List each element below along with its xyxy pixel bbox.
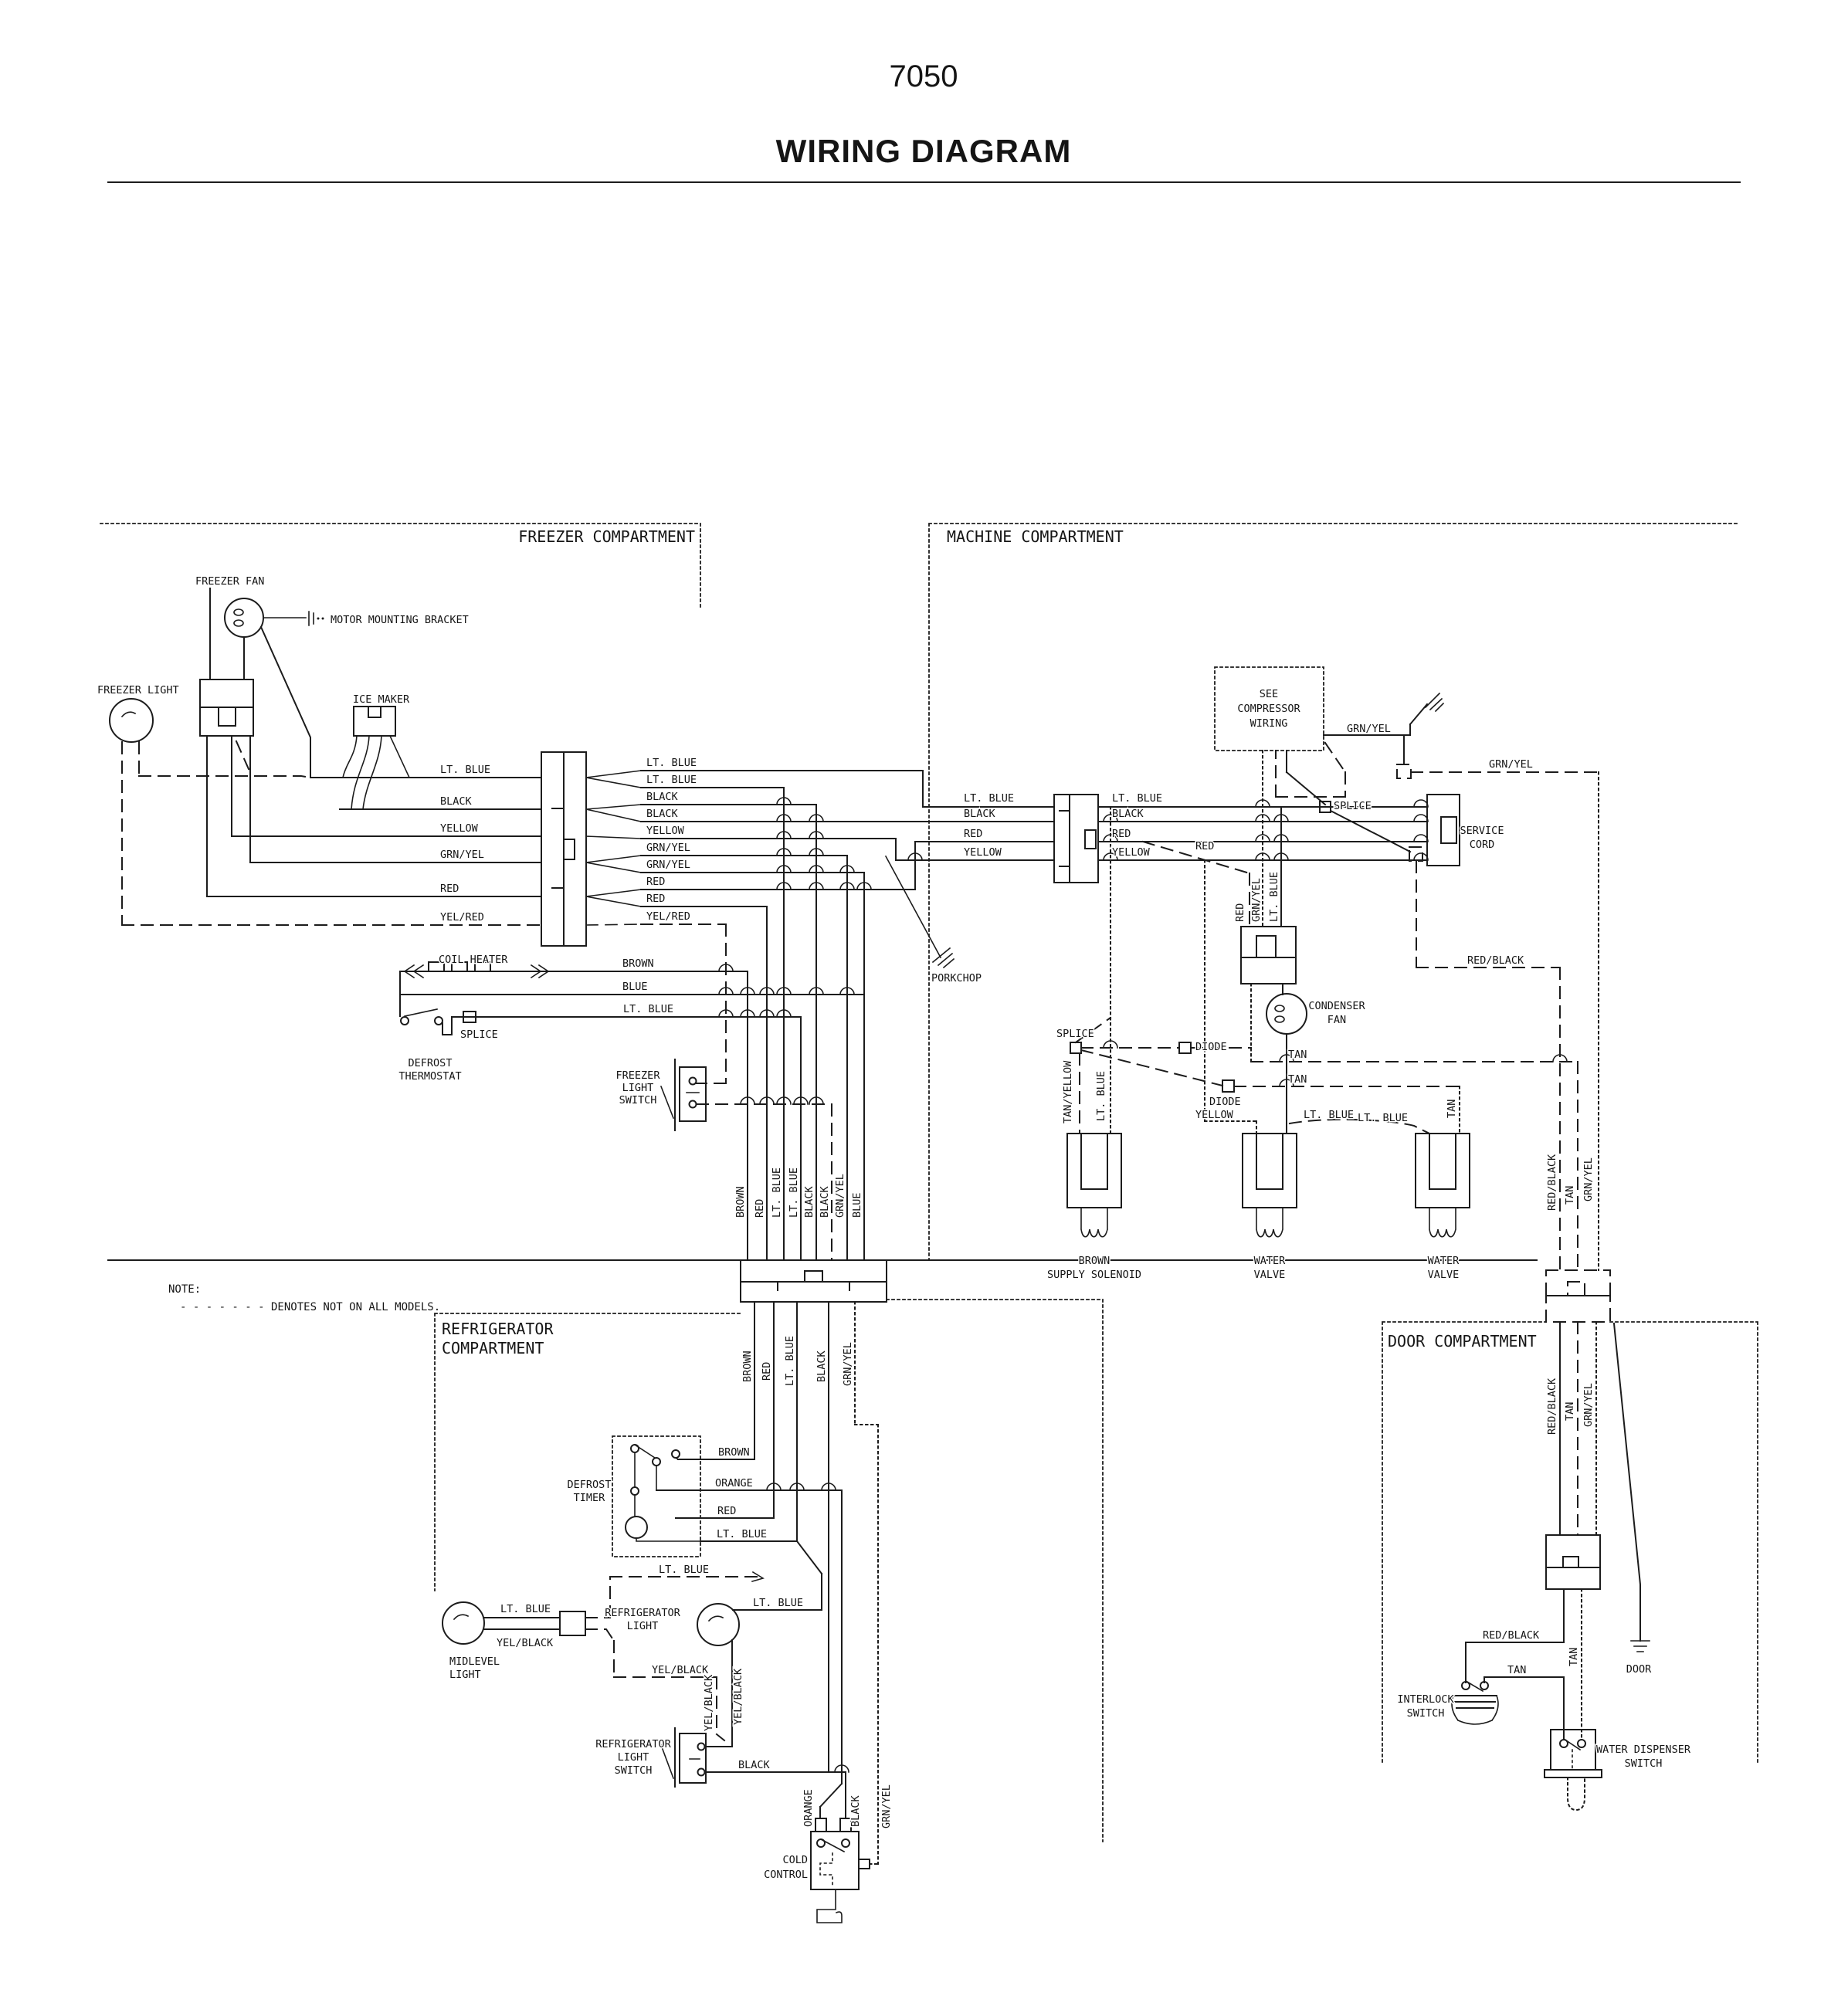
component-label-freezer-fan: FREEZER FAN [195, 575, 264, 588]
freezer-light [110, 699, 310, 925]
wire-label-black-p2: BLACK [646, 808, 679, 820]
component-label-defrost-thermostat: DEFROSTTHERMOSTAT [398, 1057, 461, 1083]
wire-label-grnyel-vr: GRN/YEL [1582, 1157, 1595, 1201]
component-label-door: DOOR [1626, 1663, 1652, 1676]
page-number: 7050 [890, 59, 958, 93]
wire-label-black-v1: BLACK [803, 1185, 815, 1218]
wire-label-grnyel-sc: GRN/YEL [1489, 758, 1533, 771]
door-wires-upper [1560, 1322, 1596, 1535]
wire-label-grnyel-v1: GRN/YEL [834, 1174, 846, 1218]
wire-label-redblack-d: RED/BLACK [1483, 1629, 1540, 1642]
page-title: WIRING DIAGRAM [776, 133, 1072, 169]
wire-label-yellow-wv: YELLOW [1195, 1109, 1234, 1121]
wire-label-splice-fz: SPLICE [460, 1029, 498, 1041]
wire-label-grnyel-v6: GRN/YEL [880, 1784, 893, 1828]
compartment-borders [100, 524, 1758, 1842]
component-label-porkchop: PORKCHOP [931, 972, 982, 984]
note-label: NOTE: [168, 1283, 201, 1296]
wire-label-red-mc2: RED [1112, 828, 1131, 840]
wire-label-yelred-fz: YEL/RED [440, 911, 484, 923]
wire-label-grnyel-vd: GRN/YEL [1582, 1383, 1595, 1427]
wire-label-redblack-vd: RED/BLACK [1546, 1378, 1558, 1435]
wire-label-tan-vd: TAN [1564, 1402, 1576, 1421]
wire-label-brown-ch: BROWN [622, 957, 654, 970]
component-label-water-valve-1: WATERVALVE [1254, 1255, 1287, 1281]
wire-label-red-t: RED [717, 1505, 736, 1517]
wire-label-yelblack-dash: YEL/BLACK [652, 1664, 709, 1676]
component-label-condenser-fan: CONDENSERFAN [1308, 1000, 1365, 1026]
wire-label-tan-2: TAN [1288, 1073, 1307, 1086]
wire-label-tan-v1: TAN [1446, 1100, 1458, 1118]
wire-label-yellow-mc2: YELLOW [1112, 846, 1151, 859]
wiring-diagram-page: 7050 WIRING DIAGRAM NOTE: - - - - - - - … [0, 0, 1848, 2013]
component-label-see-compressor-wiring: SEECOMPRESSORWIRING [1237, 688, 1300, 730]
wire-label-ltblue-v3: LT. BLUE [784, 1336, 796, 1386]
wiring-diagram-canvas: 7050 WIRING DIAGRAM NOTE: - - - - - - - … [0, 0, 1848, 2013]
wire-label-black-mc2: BLACK [1112, 808, 1144, 820]
wire-label-ltblue-mc1: LT. BLUE [964, 792, 1014, 805]
wire-label-ltblue-vm: LT. BLUE [1268, 872, 1280, 922]
component-label-defrost-timer: DEFROSTTIMER [568, 1479, 612, 1504]
interlock-switch [1452, 1681, 1498, 1724]
machine-lower-wires [1070, 807, 1578, 1270]
note-text: - - - - - - - DENOTES NOT ON ALL MODELS. [180, 1301, 440, 1313]
freezer-plug-connector [541, 752, 641, 946]
wire-label-black-v2: BLACK [819, 1185, 831, 1218]
wire-label-ltblue-wv: LT. BLUE [1304, 1109, 1354, 1121]
wire-label-black-mc1: BLACK [964, 808, 996, 820]
machine-connector [1054, 795, 1098, 883]
wire-label-black-v4: BLACK [849, 1794, 862, 1827]
component-label-water-valve-2: WATERVALVE [1428, 1255, 1460, 1281]
wire-label-ltblue-wv2: LT. BLUE [1358, 1112, 1408, 1124]
wire-label-ltblue-mc2: LT. BLUE [1112, 792, 1162, 805]
component-label-freezer-light: FREEZER LIGHT [97, 684, 179, 696]
wire-label-yellow-mc1: YELLOW [964, 846, 1002, 859]
wire-label-ltblue-fz: LT. BLUE [440, 764, 490, 776]
wire-label-ltblue-v2: LT. BLUE [788, 1167, 800, 1218]
wire-label-black-fz: BLACK [440, 795, 473, 808]
component-label-refrigerator-light: REFRIGERATORLIGHT [605, 1607, 680, 1632]
motor-mounting-bracket-callout [261, 612, 324, 778]
compartment-label-freezer: FREEZER COMPARTMENT [518, 527, 695, 546]
wire-label-ltblue-p2: LT. BLUE [646, 774, 697, 786]
door-connector-upper [1546, 1270, 1610, 1322]
brown-supply-solenoid [1067, 1134, 1121, 1237]
refrigerator-light-switch [661, 1728, 706, 1787]
wire-label-red-dashed: RED [1195, 840, 1214, 852]
wire-label-black-sw: BLACK [738, 1759, 771, 1771]
defrost-thermostat [401, 1009, 801, 1260]
component-label-midlevel-light: MIDLEVELLIGHT [449, 1655, 500, 1681]
cold-control [811, 1818, 870, 1923]
wire-label-ltblue-p1: LT. BLUE [646, 757, 697, 769]
wire-label-ltblue-rl: LT. BLUE [753, 1597, 803, 1609]
wire-label-blue-v1: BLUE [851, 1192, 863, 1218]
wire-label-yelblack-ml: YEL/BLACK [497, 1637, 554, 1649]
component-label-interlock-switch: INTERLOCKSWITCH [1397, 1693, 1454, 1720]
component-label-motor-mounting-bracket: MOTOR MOUNTING BRACKET [331, 614, 469, 626]
water-dispenser-switch [1545, 1730, 1602, 1810]
wire-label-ltblue-ch: LT. BLUE [623, 1003, 673, 1015]
wire-label-ltblue-dash: LT. BLUE [659, 1564, 709, 1576]
component-label-water-dispenser-switch: WATER DISPENSERSWITCH [1596, 1744, 1691, 1770]
wire-label-red-v2: RED [761, 1362, 773, 1381]
wire-label-red-p2: RED [646, 893, 665, 905]
wire-label-red-mc1: RED [964, 828, 982, 840]
compartment-label-machine: MACHINE COMPARTMENT [947, 527, 1124, 546]
wire-label-yelblack-vd: YEL/BLACK [703, 1674, 715, 1731]
water-valve-1 [1243, 1134, 1297, 1237]
service-cord-connector [1427, 795, 1460, 866]
porkchop-callout [886, 856, 954, 968]
freezer-fan [200, 588, 263, 896]
wire-label-red-v1: RED [754, 1199, 766, 1218]
component-label-service-cord: SERVICECORD [1460, 825, 1504, 851]
wire-label-grnyel-p1: GRN/YEL [646, 842, 690, 854]
component-label-coil-heater: COIL HEATER [439, 954, 508, 966]
wire-label-ltblue-ml: LT. BLUE [500, 1603, 551, 1615]
splice-ground [1397, 764, 1411, 778]
component-label-cold-control: COLDCONTROL [764, 1854, 808, 1881]
wire-label-grnyel-vm: GRN/YEL [1250, 878, 1263, 922]
wire-label-red-vm: RED [1234, 903, 1246, 922]
wire-label-black-p1: BLACK [646, 791, 679, 803]
wire-label-ltblue-v5: LT. BLUE [1095, 1071, 1107, 1121]
wire-label-grnyel-p2: GRN/YEL [646, 859, 690, 871]
wire-label-ltblue-t: LT. BLUE [717, 1528, 767, 1540]
compartment-label-door: DOOR COMPARTMENT [1388, 1332, 1537, 1350]
wire-label-orange-t: ORANGE [715, 1477, 753, 1489]
door-connector-lower [1546, 1535, 1600, 1589]
wire-label-grnyel-fz: GRN/YEL [440, 849, 484, 861]
component-label-freezer-light-switch: FREEZERLIGHTSWITCH [616, 1069, 661, 1106]
wire-label-black-v3: BLACK [815, 1350, 828, 1382]
wire-label-redblack-vr: RED/BLACK [1546, 1154, 1558, 1211]
wire-label-tan-d: TAN [1507, 1664, 1526, 1676]
component-label-ice-maker: ICE MAKER [353, 693, 410, 706]
wire-label-yelblack-vs: YEL/BLACK [732, 1668, 744, 1725]
wire-label-blue-ch: BLUE [622, 981, 648, 993]
junction-connector [741, 1260, 887, 1302]
wire-label-tan-1: TAN [1288, 1049, 1307, 1061]
wire-label-brown-v2: BROWN [741, 1350, 754, 1382]
wire-label-yellow-fz: YELLOW [440, 822, 479, 835]
wire-label-grnyel-v2: GRN/YEL [842, 1342, 854, 1386]
component-label-brown-supply-solenoid: BROWNSUPPLY SOLENOID [1047, 1255, 1141, 1281]
wire-label-red-fz: RED [440, 883, 459, 895]
wire-label-tanyellow-v: TAN/YELLOW [1062, 1060, 1074, 1123]
compartment-label-refrigerator: REFRIGERATORCOMPARTMENT [442, 1320, 554, 1357]
splice-redblack [1409, 847, 1422, 861]
wire-label-brown-t: BROWN [718, 1446, 750, 1459]
defrost-timer [612, 1436, 700, 1557]
ice-maker [343, 707, 409, 809]
wire-label-diode-2: DIODE [1209, 1096, 1241, 1108]
wire-label-ltblue-v1: LT. BLUE [771, 1167, 783, 1218]
wire-label-diode-1: DIODE [1195, 1041, 1227, 1053]
wire-crossings [719, 798, 1567, 1772]
wire-label-red-p1: RED [646, 876, 665, 888]
wire-label-yelred-p: YEL/RED [646, 910, 690, 923]
wire-label-splice-sc: SPLICE [1334, 800, 1372, 812]
wire-label-brown-v1: BROWN [734, 1186, 747, 1218]
wire-label-grnyel-comp: GRN/YEL [1347, 723, 1391, 735]
wire-label-yellow-p: YELLOW [646, 825, 685, 837]
wire-label-tan-vr: TAN [1564, 1186, 1576, 1205]
wire-label-tan-vd2: TAN [1568, 1648, 1580, 1666]
wire-label-splice-m: SPLICE [1056, 1028, 1094, 1040]
freezer-light-switch [661, 1059, 832, 1260]
harness-wires [641, 771, 1054, 1260]
labels-layer: LT. BLUEBLACKYELLOWGRN/YELREDYEL/REDLT. … [97, 527, 1691, 1881]
wire-label-redblack-h: RED/BLACK [1467, 954, 1524, 967]
wire-label-orange-v: ORANGE [802, 1789, 815, 1827]
component-label-refrigerator-light-switch: REFRIGERATORLIGHTSWITCH [595, 1738, 671, 1777]
water-valve-2 [1416, 1134, 1470, 1237]
